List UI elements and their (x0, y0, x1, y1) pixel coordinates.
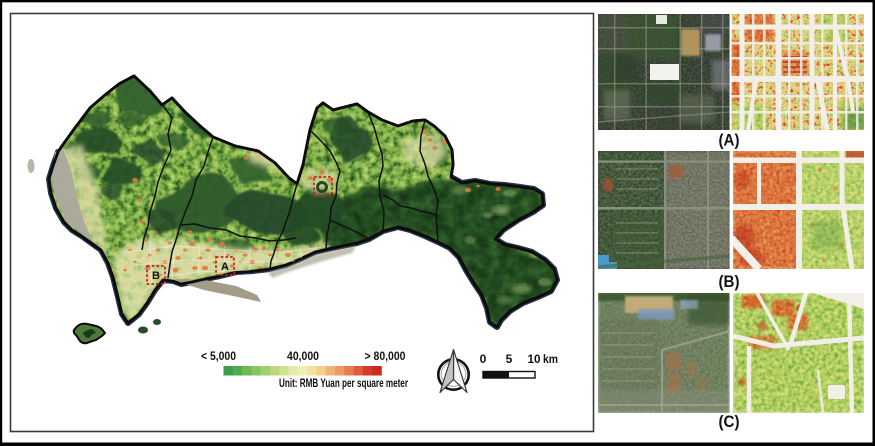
svg-text:km: km (543, 352, 558, 366)
svg-text:> 80,000: > 80,000 (365, 349, 406, 363)
svg-text:(A): (A) (719, 132, 740, 150)
svg-text:A: A (221, 261, 229, 273)
svg-text:(B): (B) (719, 273, 740, 291)
svg-text:10: 10 (528, 352, 541, 366)
svg-text:0: 0 (480, 352, 487, 366)
svg-text:40,000: 40,000 (287, 349, 319, 363)
svg-text:5: 5 (506, 352, 513, 366)
svg-text:< 5,000: < 5,000 (201, 349, 236, 363)
svg-text:B: B (152, 270, 160, 282)
svg-text:Unit: RMB Yuan per square mete: Unit: RMB Yuan per square meter (279, 376, 408, 390)
svg-text:(C): (C) (719, 413, 740, 431)
